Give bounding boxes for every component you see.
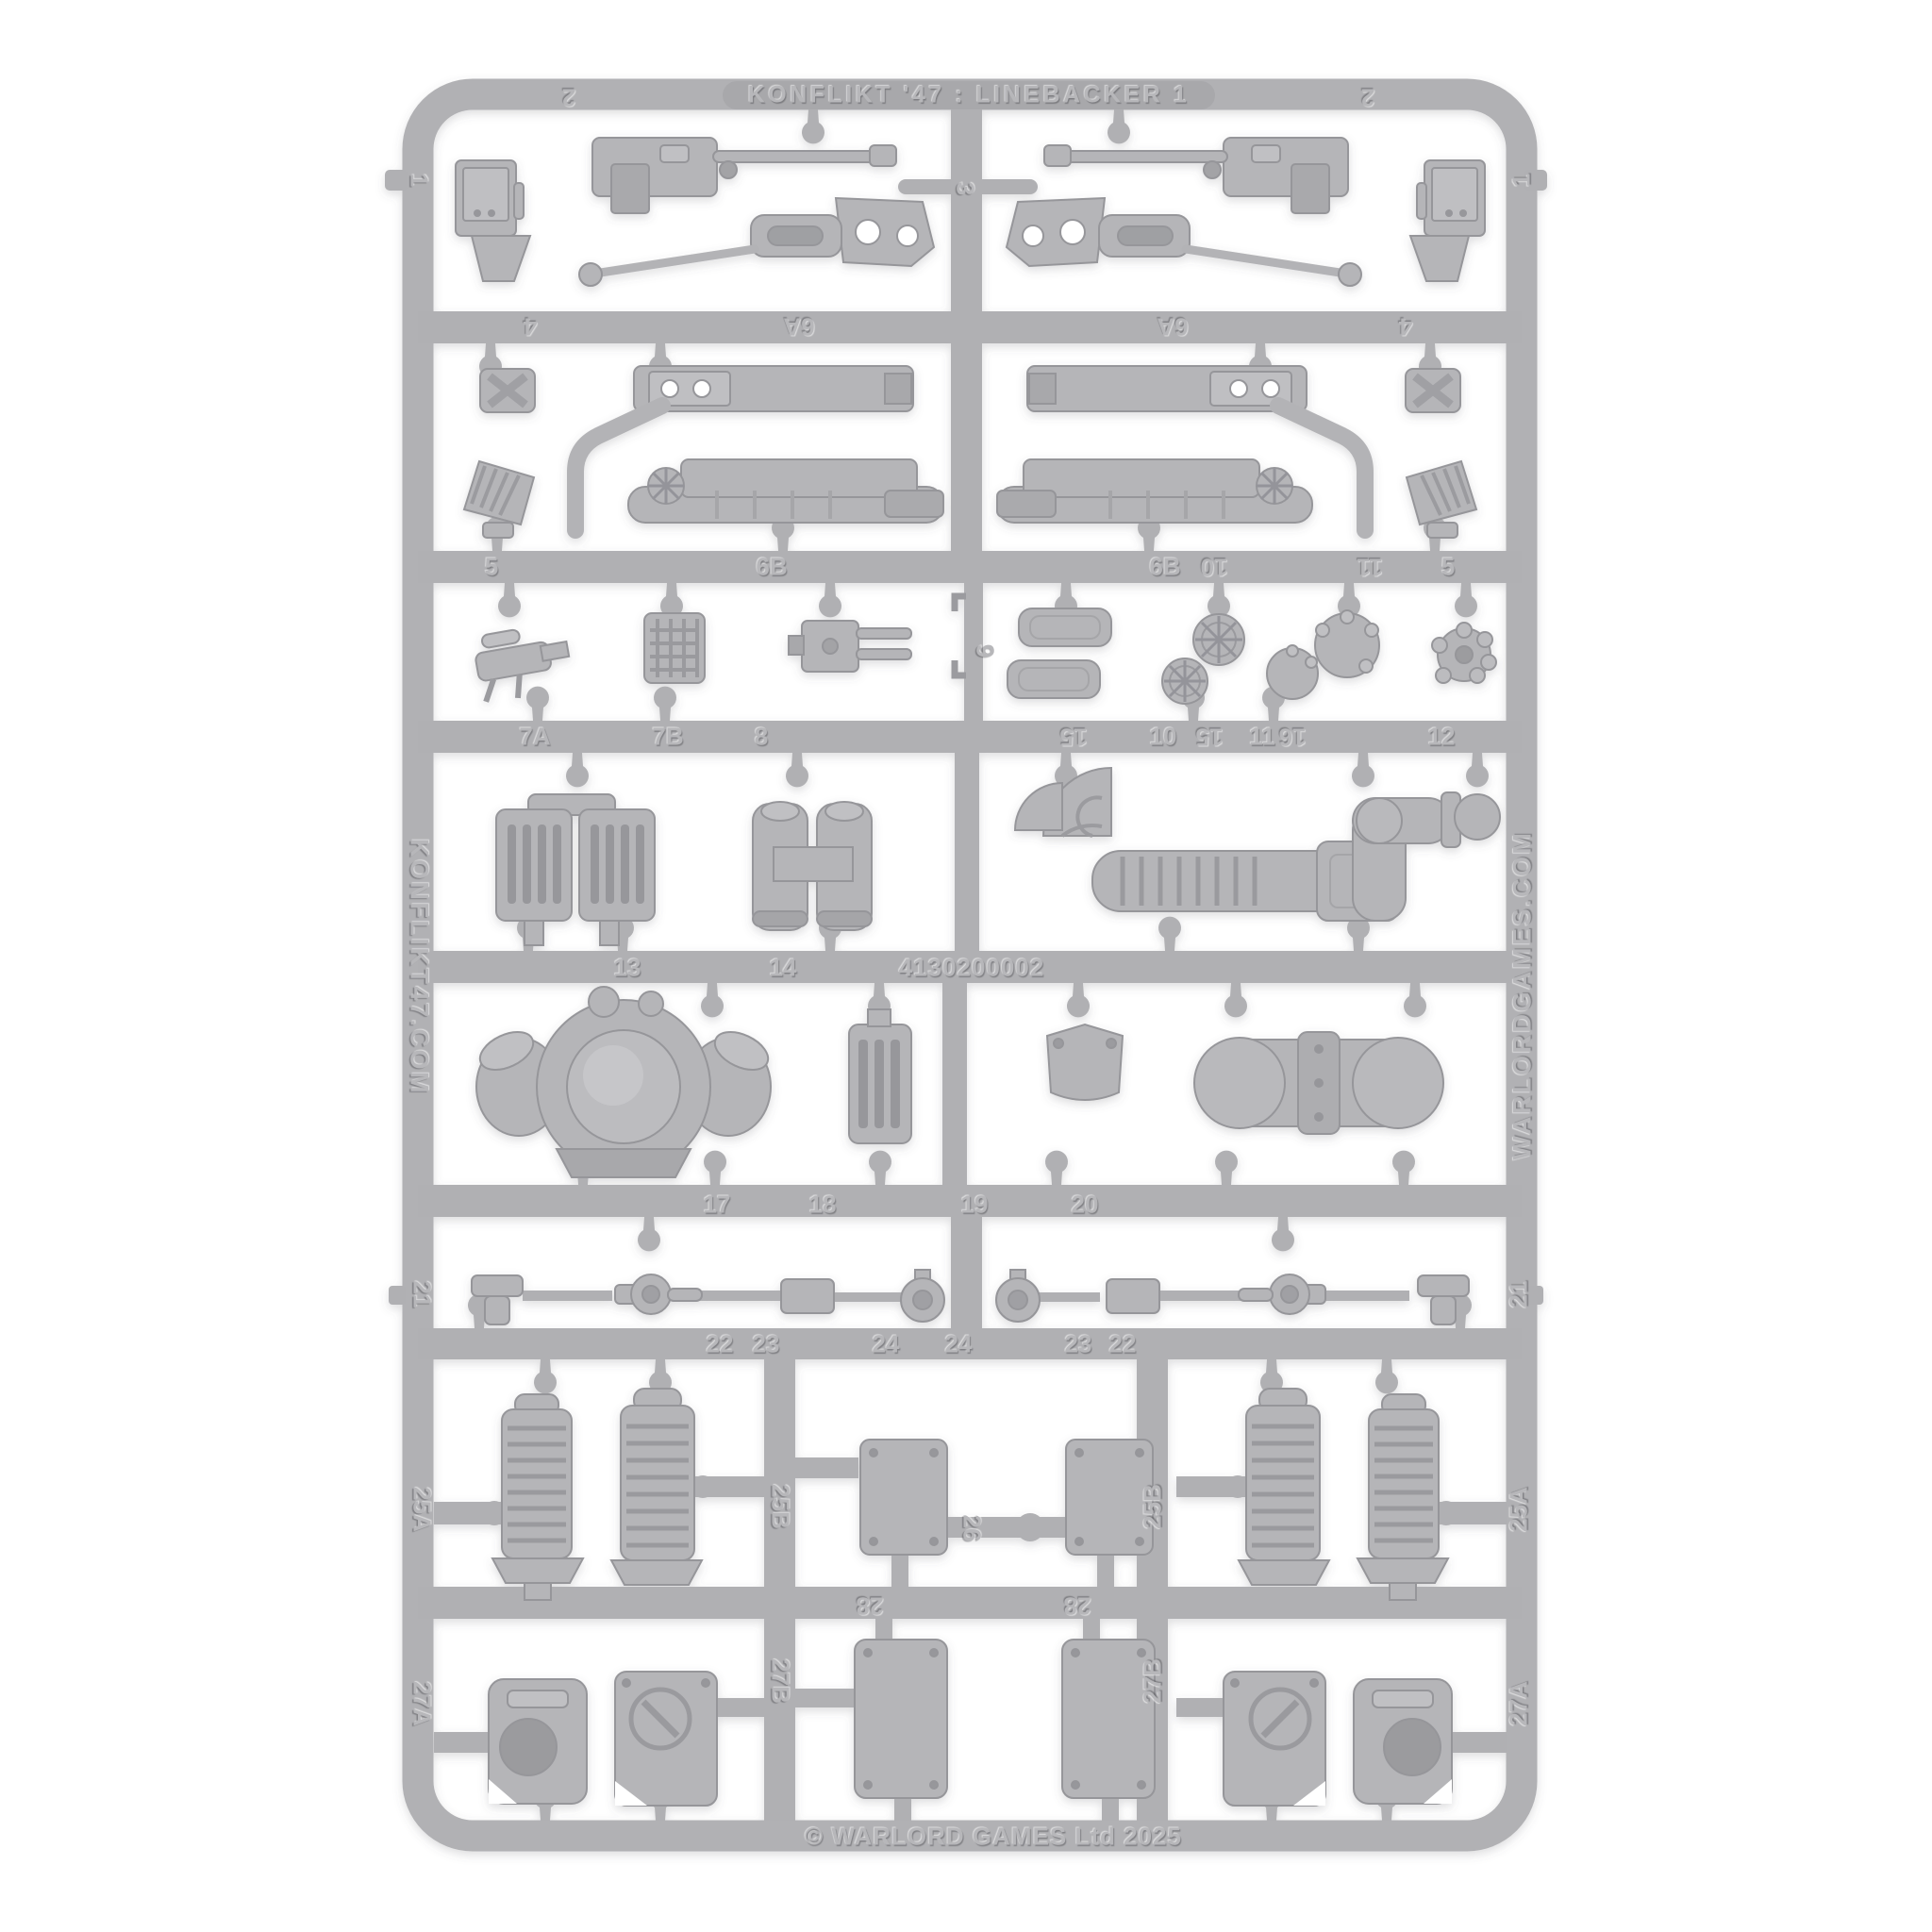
sprue-body (385, 81, 1547, 1836)
part-14-binocular-block (753, 802, 872, 930)
part-6b-gun-body (628, 459, 943, 523)
part-17-turbine (475, 987, 774, 1177)
part-4-x-box (480, 369, 535, 412)
sprue-photo: KONFLIKT '47 : LINEBACKER 1 KONFLIKT47.C… (0, 0, 1932, 1932)
parts-row8-left (489, 1672, 717, 1806)
parts-row2-left (464, 366, 943, 538)
parts-row8-right-mirrored (1224, 1672, 1452, 1806)
part-10-spoked-wheels (1162, 614, 1244, 704)
part-8-connector (789, 621, 911, 672)
part-27b-hatch-box (615, 1672, 717, 1806)
part-20-twin-dome-tank (1194, 1032, 1443, 1134)
part-1-ammo-box (456, 160, 530, 281)
part-7b-waffle-plate (644, 613, 705, 683)
part-25a-finned-cylinder (492, 1394, 583, 1600)
part-25b-finned-cylinder (611, 1389, 702, 1585)
part-23-ball-joint (615, 1274, 702, 1314)
part-27a-turret-box (489, 1679, 587, 1804)
part-5-fan-cone (464, 461, 534, 538)
part-28-plates (855, 1640, 1155, 1798)
parts-row1-right-mirrored (1007, 138, 1485, 286)
part-7a-launcher (472, 621, 575, 704)
parts-row1-left (456, 138, 934, 286)
part-11-spheres (1267, 610, 1379, 699)
part-12-cap (1432, 623, 1496, 683)
parts-row2-right-mirrored (997, 366, 1476, 538)
part-24-plate (781, 1279, 834, 1313)
part-19-shield (1047, 1024, 1123, 1100)
part-15-plates (1008, 608, 1111, 698)
part-18-grille-plate (849, 1009, 911, 1143)
parts-row7-right-mirrored (1239, 1389, 1448, 1600)
part-6a-receiver (634, 366, 913, 411)
parts-row7-left (492, 1389, 702, 1600)
part-16-elbow-pipe (1353, 792, 1500, 921)
sprue-artwork (0, 0, 1932, 1932)
part-24-disc (901, 1270, 944, 1322)
